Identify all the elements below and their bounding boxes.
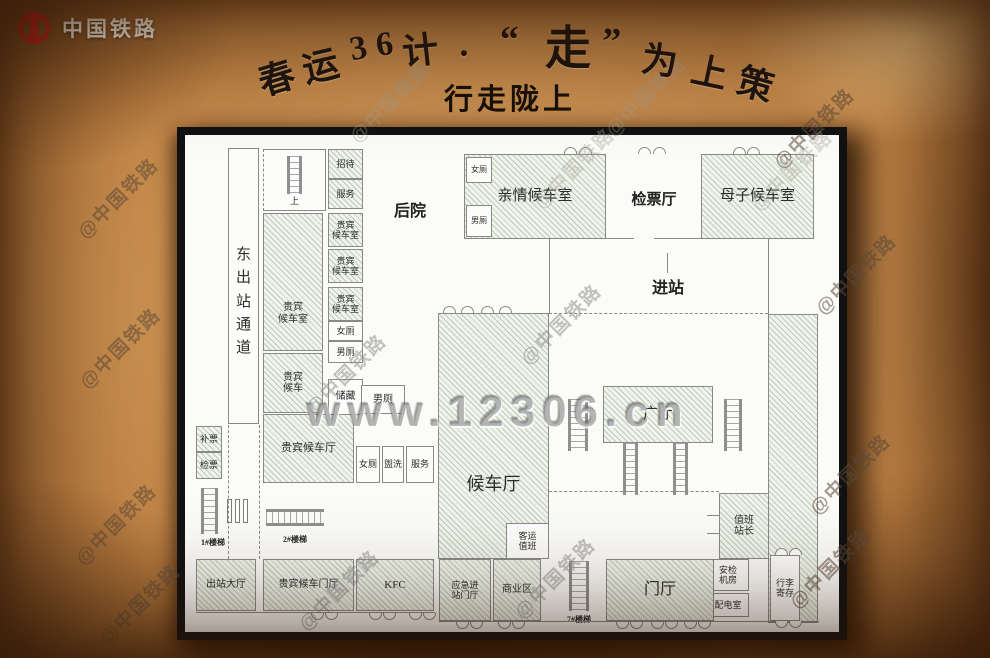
dashed-wall (228, 425, 229, 559)
door-arc (698, 622, 711, 629)
room-yingji: 应急进 站门厅 (439, 559, 491, 621)
room-jianpiao: 检票 (196, 452, 222, 479)
room-zhaodai: 招待 (328, 149, 363, 179)
wall-line (707, 533, 719, 534)
door-arc (443, 306, 456, 313)
repeat-watermark: @中国铁路 (73, 301, 166, 394)
door-arc (775, 548, 788, 555)
escalator-icon (266, 509, 324, 526)
escalator-icon (623, 443, 638, 495)
floorplan: 上 www.12306.cn 东 出 站 通 道招待服务贵宾 候车室贵宾 候车贵… (177, 127, 847, 640)
title-char: 上 (687, 41, 733, 99)
room-vip-room-b: 贵宾 候车室 (328, 213, 363, 247)
door-arc (456, 622, 469, 629)
room-vip-room-c: 贵宾 候车室 (328, 249, 363, 283)
room-fuwu-top: 服务 (328, 179, 363, 209)
wall-line (667, 253, 668, 273)
room-bupiao: 补票 (196, 426, 222, 452)
title-char: 运 (297, 35, 344, 94)
wall-line (707, 515, 719, 516)
repeat-watermark: @中国铁路 (69, 477, 162, 570)
door-arc (461, 306, 474, 313)
label-stair7: 7#楼梯 (551, 614, 607, 624)
room-fuwu-row: 服务 (406, 446, 434, 483)
door-arc (775, 621, 788, 628)
door-arc (747, 147, 760, 154)
door-arc (684, 622, 697, 629)
door-arc (383, 613, 396, 620)
title-char: 策 (732, 52, 781, 112)
room-menting: 门厅 (606, 559, 714, 621)
door-arc (498, 622, 511, 629)
room-nvce-row: 女厕 (356, 446, 380, 483)
door-arc (481, 306, 494, 313)
room-nvce-mid: 女厕 (328, 321, 363, 341)
escalator-icon (673, 443, 688, 495)
title-char: 春 (251, 46, 301, 106)
wall-line (439, 621, 819, 622)
door-arc (499, 306, 512, 313)
repeat-watermark: @中国铁路 (93, 557, 186, 650)
room-guanxi: 盥洗 (382, 446, 404, 483)
room-nvce-qq: 女厕 (466, 157, 492, 183)
escalator-icon (724, 399, 742, 451)
door-arc (512, 622, 525, 629)
door-arc (789, 621, 802, 628)
room-stairs-up: 上 (263, 149, 326, 211)
title-char: ” (601, 20, 622, 65)
title-char: 3 (347, 29, 370, 69)
dashed-wall (259, 425, 260, 559)
label-jinzhan: 进站 (640, 275, 696, 297)
door-arc (653, 147, 666, 154)
china-railway-logo: 中国铁路 (16, 10, 158, 46)
label-stair1: 1#楼梯 (185, 536, 241, 548)
turnstile-icon (235, 499, 240, 523)
title-char: 为 (639, 30, 681, 86)
page-subtitle: 行走陇上 (430, 76, 590, 118)
wall-line (549, 239, 550, 314)
slide: 中国铁路 春运36计·“走”为上策 行走陇上 @中国铁路@中国铁路@中国铁路@中… (0, 0, 990, 658)
wall-line (654, 238, 701, 239)
title-char: 走 (545, 12, 591, 78)
floorplan-canvas: 上 www.12306.cn 东 出 站 通 道招待服务贵宾 候车室贵宾 候车贵… (185, 135, 839, 632)
escalator-icon (287, 156, 302, 194)
door-arc (423, 613, 436, 620)
room-vip-room-a: 贵宾 候车室 (263, 213, 323, 351)
door-arc (616, 622, 629, 629)
door-arc (733, 147, 746, 154)
door-arc (789, 548, 802, 555)
room-keyun: 客运 值班 (506, 523, 549, 559)
title-char: “ (500, 18, 520, 62)
dashed-wall (549, 491, 719, 492)
label-houyuan: 后院 (375, 197, 445, 221)
up-label: 上 (264, 196, 325, 206)
wall-line (606, 238, 634, 239)
door-arc (470, 622, 483, 629)
room-east-exit: 东 出 站 通 道 (228, 148, 259, 424)
door-arc (638, 147, 651, 154)
escalator-icon (201, 488, 218, 534)
turnstile-icon (243, 499, 248, 523)
room-nance-qq: 男厕 (466, 205, 492, 237)
brand-name: 中国铁路 (62, 13, 158, 43)
door-arc (651, 622, 664, 629)
title-char: · (457, 32, 470, 74)
repeat-watermark: @中国铁路 (71, 151, 164, 244)
title-char: 6 (373, 25, 395, 65)
wall-line (768, 239, 769, 315)
room-vip-room-d: 贵宾 候车室 (328, 287, 363, 321)
room-exit-hall: 出站大厅 (196, 559, 256, 611)
door-arc (630, 622, 643, 629)
label-stair2: 2#楼梯 (266, 533, 324, 545)
door-arc (369, 613, 382, 620)
label-jianpiao-hall: 检票厅 (616, 187, 692, 209)
room-zhiban: 值班 站长 (719, 493, 769, 559)
door-arc (665, 622, 678, 629)
china-railway-emblem-icon (16, 10, 52, 46)
title-char: 计 (399, 20, 440, 75)
door-arc (409, 613, 422, 620)
